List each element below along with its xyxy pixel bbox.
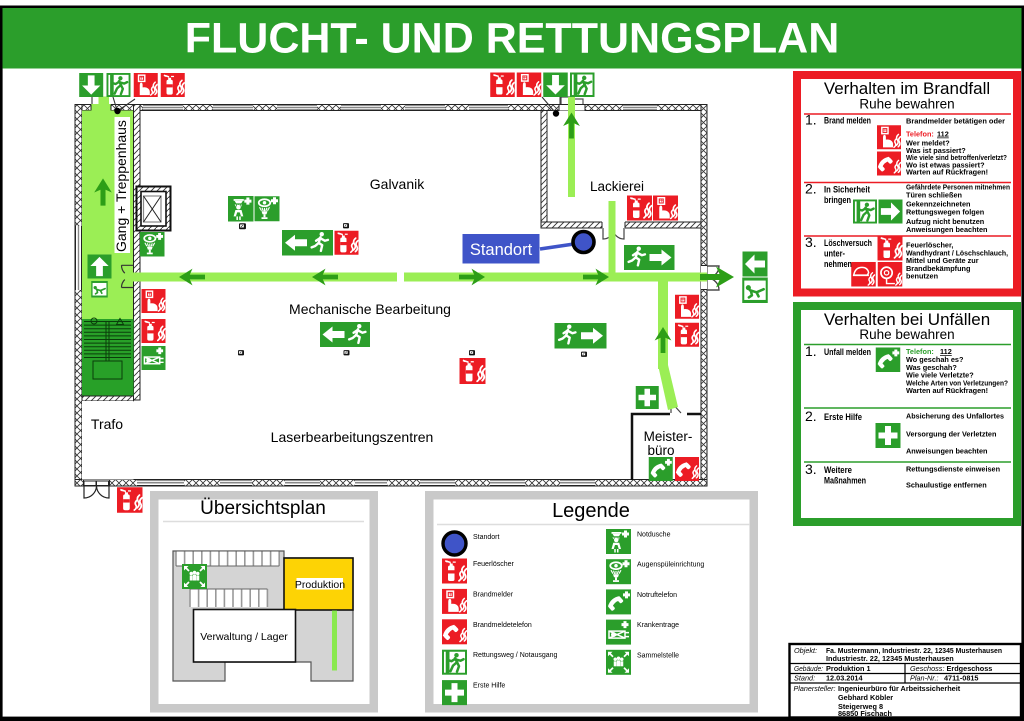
svg-text:Rettungsdienste einweisen: Rettungsdienste einweisen bbox=[906, 465, 1000, 474]
svg-text:3.: 3. bbox=[805, 234, 817, 250]
svg-text:Brand melden: Brand melden bbox=[824, 116, 871, 126]
svg-text:Ingenieurbüro für Arbeitssiche: Ingenieurbüro für Arbeitssicherheit bbox=[838, 684, 961, 693]
svg-text:Erste Hilfe: Erste Hilfe bbox=[473, 683, 505, 690]
svg-text:Produktion: Produktion bbox=[295, 579, 345, 591]
svg-text:Lackierei: Lackierei bbox=[590, 179, 644, 194]
svg-text:Meister-: Meister- bbox=[644, 429, 693, 444]
svg-text:Versorgung der Verletzten: Versorgung der Verletzten bbox=[906, 430, 996, 439]
svg-text:86850 Fischach: 86850 Fischach bbox=[838, 709, 892, 718]
svg-text:Geschoss: Erdgeschoss: Geschoss: Erdgeschoss bbox=[910, 664, 992, 673]
svg-text:Warten auf Rückfragen!: Warten auf Rückfragen! bbox=[906, 386, 988, 395]
svg-text:Trafo: Trafo bbox=[91, 416, 123, 432]
svg-text:112: 112 bbox=[937, 130, 949, 139]
svg-text:Türen schließen: Türen schließen bbox=[906, 190, 962, 199]
svg-text:Feuerlöscher: Feuerlöscher bbox=[473, 561, 515, 568]
svg-text:Legende: Legende bbox=[552, 500, 630, 522]
svg-text:Augenspüleinrichtung: Augenspüleinrichtung bbox=[637, 562, 704, 569]
svg-text:benutzen: benutzen bbox=[906, 272, 938, 281]
svg-text:Gebhard Köbler: Gebhard Köbler bbox=[838, 693, 893, 702]
svg-text:Anweisungen beachten: Anweisungen beachten bbox=[906, 447, 988, 456]
svg-text:Gang + Treppenhaus: Gang + Treppenhaus bbox=[113, 120, 129, 252]
svg-text:Plan-Nr.:: Plan-Nr.: bbox=[910, 674, 939, 683]
svg-text:Mechanische Bearbeitung: Mechanische Bearbeitung bbox=[289, 301, 451, 317]
svg-text:Verwaltung / Lager: Verwaltung / Lager bbox=[200, 631, 288, 643]
svg-text:Rettungswegen folgen: Rettungswegen folgen bbox=[906, 207, 984, 216]
svg-text:Brandmeldetelefon: Brandmeldetelefon bbox=[473, 622, 532, 629]
svg-text:Unfall melden: Unfall melden bbox=[824, 347, 871, 357]
svg-text:Warten auf Rückfragen!: Warten auf Rückfragen! bbox=[906, 168, 988, 177]
svg-text:Weitere: Weitere bbox=[824, 465, 852, 475]
svg-text:Galvanik: Galvanik bbox=[370, 176, 425, 192]
svg-text:Löschversuch: Löschversuch bbox=[824, 238, 872, 248]
svg-text:Ruhe bewahren: Ruhe bewahren bbox=[859, 327, 954, 342]
svg-text:unter-: unter- bbox=[824, 249, 845, 259]
svg-text:1.: 1. bbox=[805, 112, 817, 128]
svg-text:nehmen: nehmen bbox=[824, 259, 852, 269]
svg-text:Telefon:: Telefon: bbox=[906, 130, 934, 139]
svg-text:Planersteller:: Planersteller: bbox=[794, 684, 836, 693]
svg-text:Anweisungen beachten: Anweisungen beachten bbox=[906, 225, 988, 234]
svg-text:Sammelstelle: Sammelstelle bbox=[637, 652, 679, 659]
svg-text:büro: büro bbox=[647, 443, 674, 458]
svg-text:Übersichtsplan: Übersichtsplan bbox=[200, 498, 326, 519]
svg-text:Gebäude:: Gebäude: bbox=[794, 664, 823, 673]
svg-text:Notdusche: Notdusche bbox=[637, 532, 671, 539]
svg-text:FLUCHT- UND RETTUNGSPLAN: FLUCHT- UND RETTUNGSPLAN bbox=[185, 15, 840, 63]
svg-text:Produktion 1: Produktion 1 bbox=[826, 664, 871, 673]
svg-text:Krankentrage: Krankentrage bbox=[637, 622, 679, 629]
svg-text:bringen: bringen bbox=[824, 195, 851, 205]
svg-text:Verhalten im Brandfall: Verhalten im Brandfall bbox=[824, 79, 990, 98]
svg-text:Standort: Standort bbox=[470, 241, 533, 259]
svg-text:Ruhe bewahren: Ruhe bewahren bbox=[859, 97, 954, 112]
svg-text:1.: 1. bbox=[805, 343, 817, 359]
svg-text:2.: 2. bbox=[805, 181, 817, 197]
svg-text:Maßnahmen: Maßnahmen bbox=[824, 476, 866, 486]
svg-text:Laserbearbeitungszentren: Laserbearbeitungszentren bbox=[271, 429, 434, 445]
svg-text:Absicherung des Unfallortes: Absicherung des Unfallortes bbox=[906, 412, 1004, 421]
svg-text:Brandmelder betätigen oder: Brandmelder betätigen oder bbox=[906, 117, 1005, 126]
svg-text:Industriestr. 22, 12345 Muster: Industriestr. 22, 12345 Musterhausen bbox=[826, 654, 954, 663]
svg-text:3.: 3. bbox=[805, 461, 817, 477]
svg-text:Stand:: Stand: bbox=[794, 674, 815, 683]
svg-text:In Sicherheit: In Sicherheit bbox=[824, 185, 870, 195]
svg-text:Brandmelder: Brandmelder bbox=[473, 591, 514, 598]
svg-text:Standort: Standort bbox=[473, 534, 500, 541]
svg-text:4711-0815: 4711-0815 bbox=[944, 674, 979, 683]
svg-text:Erste Hilfe: Erste Hilfe bbox=[824, 412, 862, 422]
svg-text:Notruftelefon: Notruftelefon bbox=[637, 592, 677, 599]
svg-text:12.03.2014: 12.03.2014 bbox=[826, 674, 863, 683]
svg-text:Objekt:: Objekt: bbox=[794, 646, 817, 655]
svg-text:Schaulustige entfernen: Schaulustige entfernen bbox=[906, 481, 987, 490]
svg-text:Rettungsweg / Notausgang: Rettungsweg / Notausgang bbox=[473, 652, 558, 659]
svg-text:2.: 2. bbox=[805, 408, 817, 424]
